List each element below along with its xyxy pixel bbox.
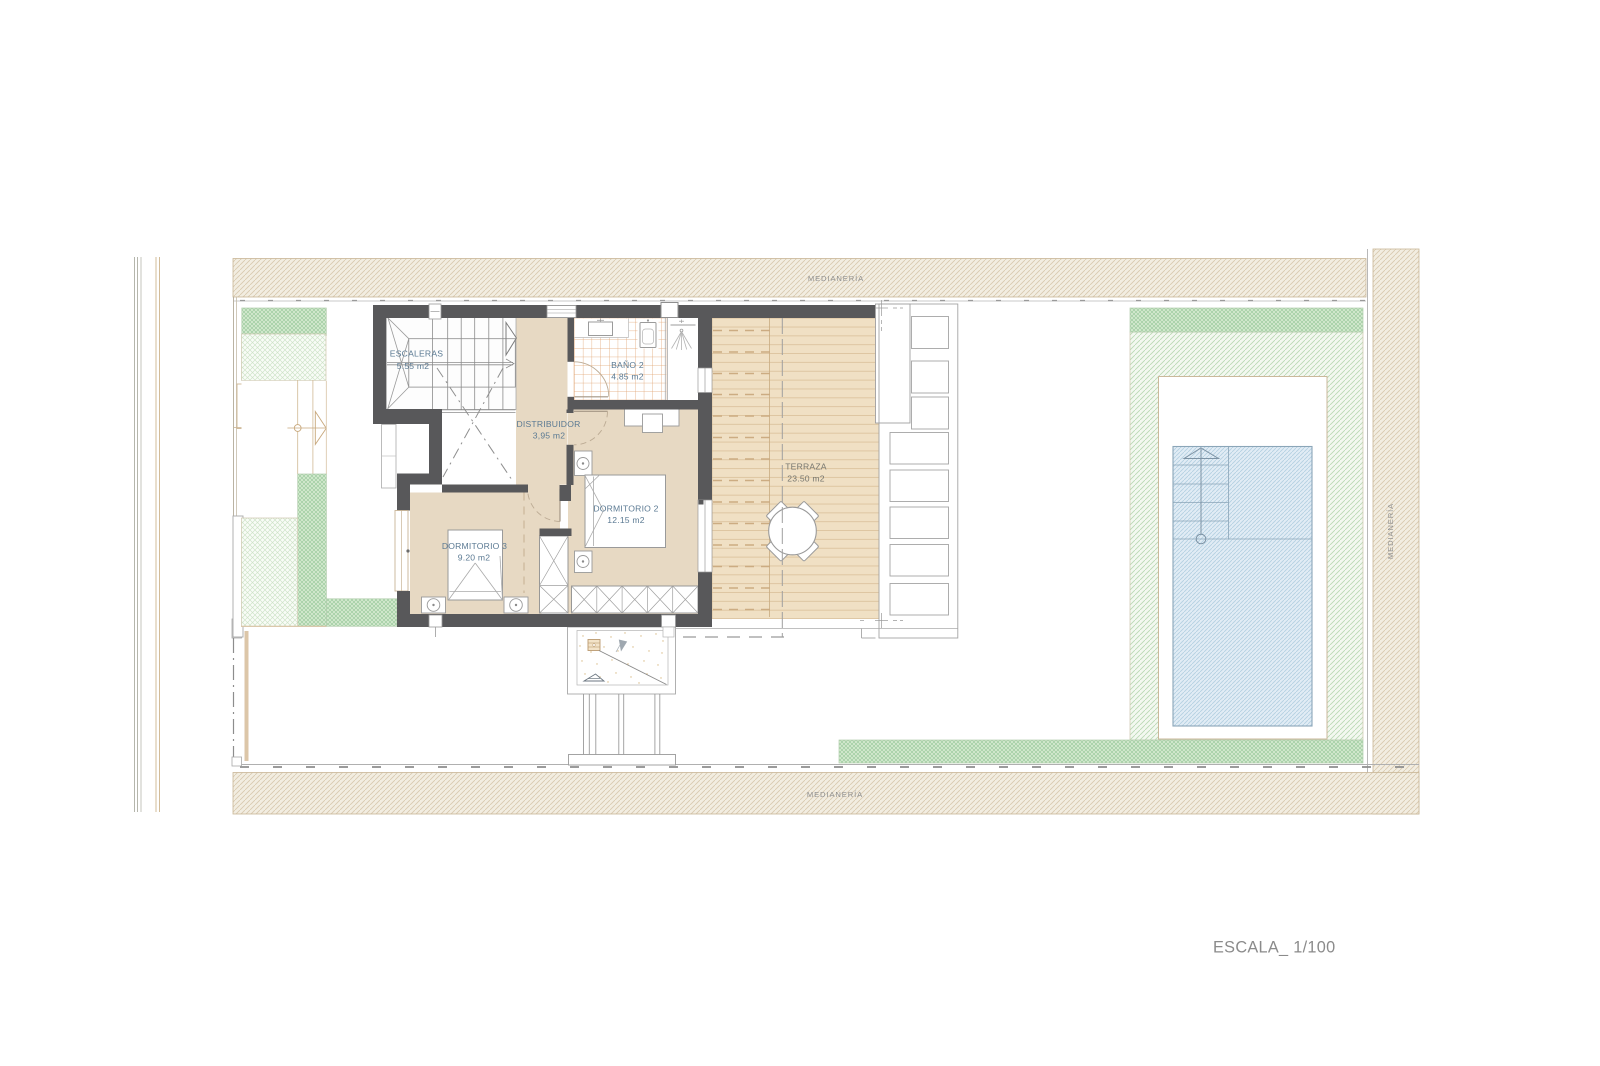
svg-text:BAÑO 2: BAÑO 2 <box>611 360 644 370</box>
svg-text:DISTRIBUIDOR: DISTRIBUIDOR <box>517 419 581 429</box>
svg-text:MEDIANERÍA: MEDIANERÍA <box>808 274 864 283</box>
svg-text:12.15 m2: 12.15 m2 <box>607 515 644 525</box>
svg-text:4.85 m2: 4.85 m2 <box>611 372 643 382</box>
svg-text:MEDIANERÍA: MEDIANERÍA <box>807 790 863 799</box>
svg-text:MEDIANERÍA: MEDIANERÍA <box>1386 503 1395 559</box>
svg-text:DORMITORIO 2: DORMITORIO 2 <box>593 504 658 514</box>
svg-text:5.55 m2: 5.55 m2 <box>397 361 429 371</box>
svg-text:9.20 m2: 9.20 m2 <box>458 553 490 563</box>
svg-text:23.50 m2: 23.50 m2 <box>787 474 824 484</box>
svg-text:TERRAZA: TERRAZA <box>785 462 827 472</box>
svg-text:3,95 m2: 3,95 m2 <box>533 431 565 441</box>
svg-text:ESCALA_ 1/100: ESCALA_ 1/100 <box>1213 939 1335 957</box>
svg-text:ESCALERAS: ESCALERAS <box>390 349 443 359</box>
svg-text:DORMITORIO 3: DORMITORIO 3 <box>442 541 507 551</box>
